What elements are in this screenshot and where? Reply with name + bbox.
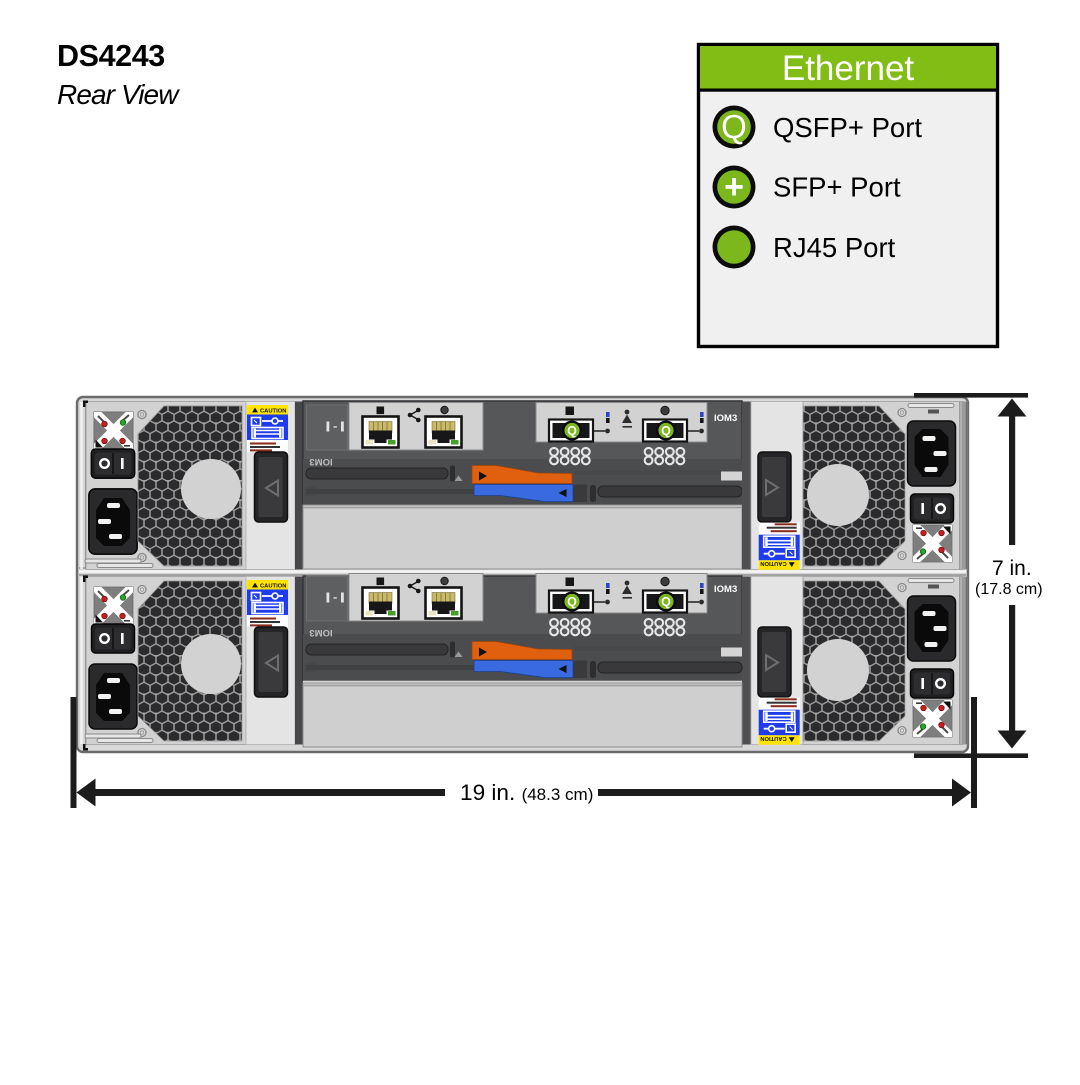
svg-text:IOM3: IOM3 <box>309 456 332 467</box>
svg-text:QSFP+ Port: QSFP+ Port <box>773 112 922 143</box>
svg-text:SFP+ Port: SFP+ Port <box>773 172 901 203</box>
svg-text:+: + <box>724 168 744 206</box>
svg-text:(17.8 cm): (17.8 cm) <box>975 581 1043 598</box>
svg-text:Rear View: Rear View <box>57 79 180 110</box>
svg-text:DS4243: DS4243 <box>57 39 165 73</box>
svg-text:Q: Q <box>721 108 747 145</box>
svg-text:Ethernet: Ethernet <box>782 49 915 88</box>
svg-text:IOM3: IOM3 <box>714 413 737 424</box>
svg-text:7 in.: 7 in. <box>992 557 1032 580</box>
svg-text:RJ45 Port: RJ45 Port <box>773 232 896 263</box>
